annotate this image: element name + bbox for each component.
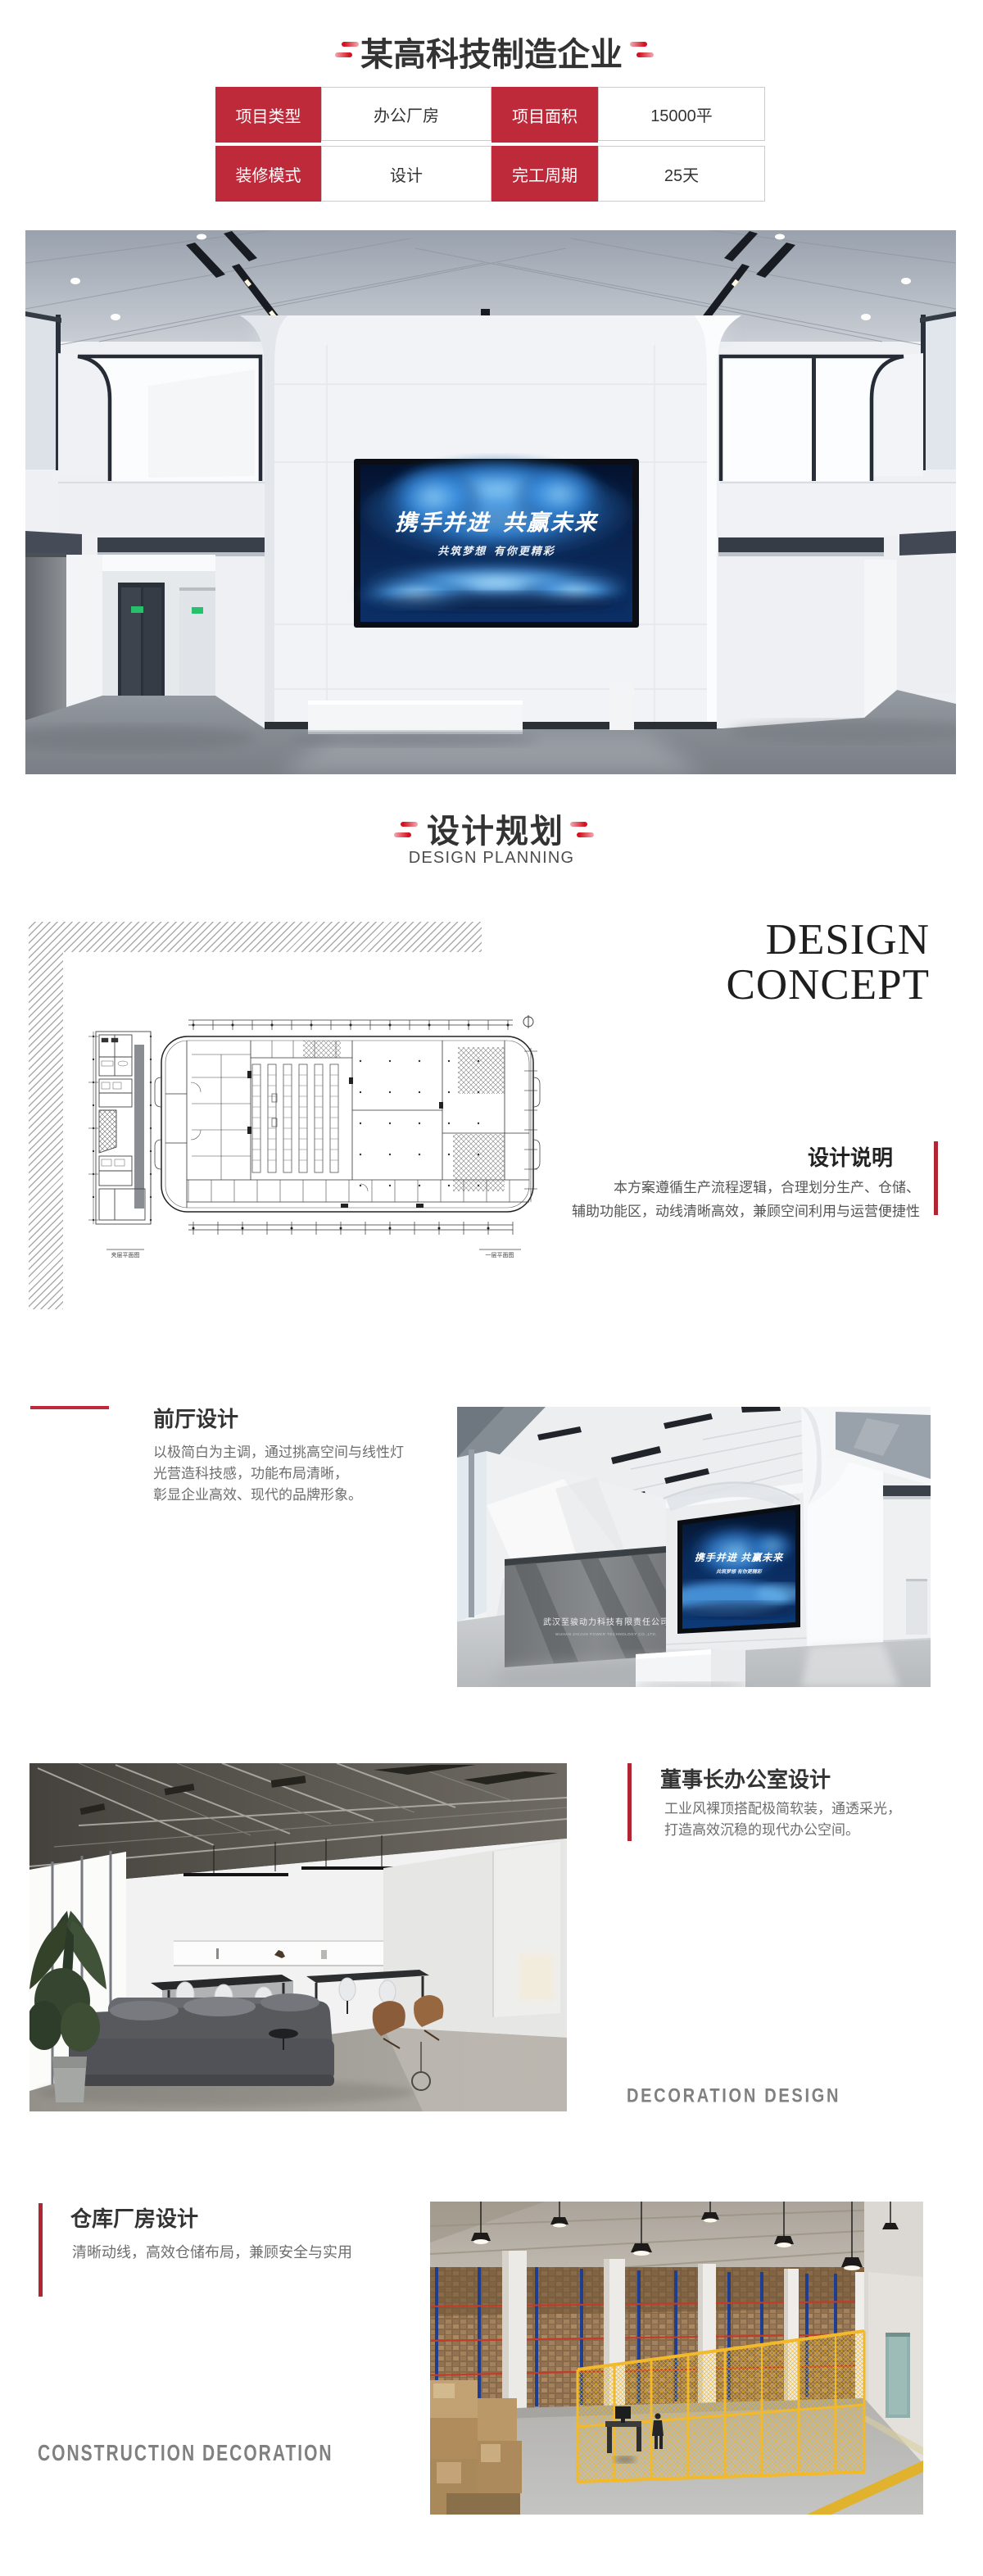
svg-text:携手并进 共赢未来: 携手并进 共赢未来 xyxy=(395,510,598,535)
svg-text:武汉至骏动力科技有限责任公司: 武汉至骏动力科技有限责任公司 xyxy=(543,1617,669,1627)
svg-text:一层平面图: 一层平面图 xyxy=(486,1252,514,1259)
svg-text:WUHAN ZHIJUN POWER TECHNOLOGY: WUHAN ZHIJUN POWER TECHNOLOGY CO.,LTD. xyxy=(555,1632,657,1636)
svg-text:共筑梦想 有你更精彩: 共筑梦想 有你更精彩 xyxy=(437,545,555,557)
svg-text:携手并进 共赢未来: 携手并进 共赢未来 xyxy=(695,1552,784,1563)
svg-text:夹层平面图: 夹层平面图 xyxy=(111,1251,140,1259)
svg-text:共筑梦想 有你更精彩: 共筑梦想 有你更精彩 xyxy=(716,1568,763,1575)
